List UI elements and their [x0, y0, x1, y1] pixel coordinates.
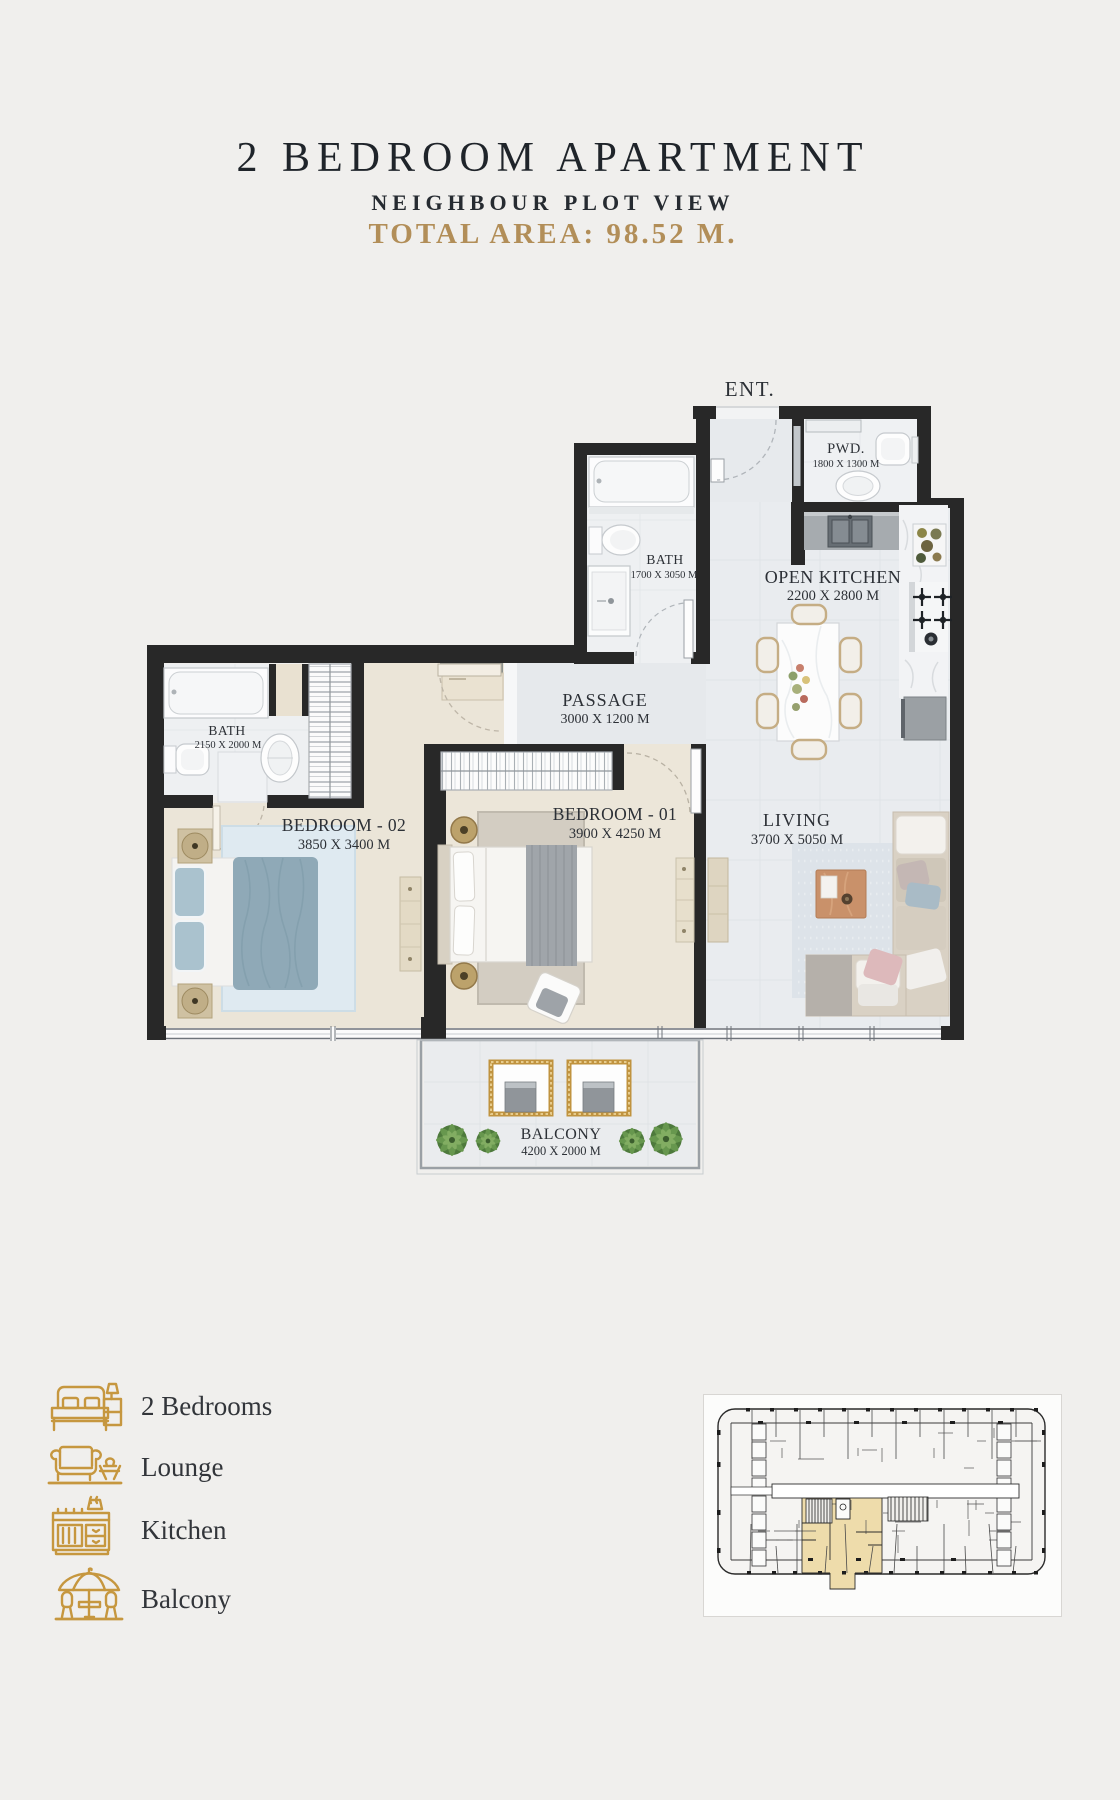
svg-text:1700 X 3050 M: 1700 X 3050 M: [631, 570, 698, 581]
svg-text:1800 X 1300 M: 1800 X 1300 M: [813, 459, 880, 470]
svg-text:LIVING: LIVING: [763, 810, 831, 830]
svg-text:BATH: BATH: [646, 552, 683, 567]
svg-text:PASSAGE: PASSAGE: [562, 690, 647, 710]
svg-text:PWD.: PWD.: [827, 441, 865, 457]
svg-text:2200 X 2800 M: 2200 X 2800 M: [787, 588, 879, 604]
svg-text:3850 X 3400 M: 3850 X 3400 M: [298, 837, 390, 853]
svg-text:4200 X 2000 M: 4200 X 2000 M: [521, 1144, 601, 1158]
svg-text:2150 X 2000 M: 2150 X 2000 M: [195, 740, 262, 751]
svg-text:BEDROOM - 01: BEDROOM - 01: [553, 804, 677, 824]
svg-text:OPEN KITCHEN: OPEN KITCHEN: [765, 567, 902, 587]
svg-text:3700 X 5050 M: 3700 X 5050 M: [751, 832, 843, 848]
svg-text:3900 X 4250 M: 3900 X 4250 M: [569, 826, 661, 842]
svg-text:BATH: BATH: [208, 723, 245, 738]
svg-text:BALCONY: BALCONY: [521, 1126, 602, 1143]
svg-text:ENT.: ENT.: [725, 377, 776, 401]
svg-text:3000 X 1200 M: 3000 X 1200 M: [560, 712, 650, 727]
svg-text:BEDROOM - 02: BEDROOM - 02: [282, 815, 406, 835]
